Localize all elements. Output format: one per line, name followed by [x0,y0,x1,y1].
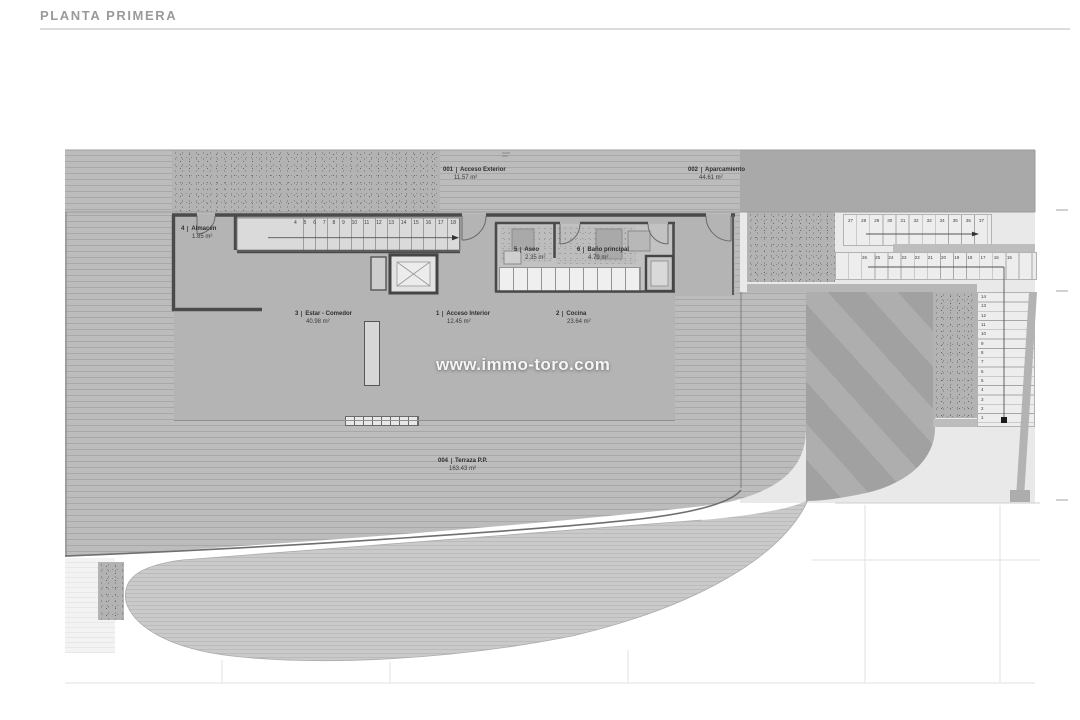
room-name: Aseo [524,247,539,253]
room-number: 2 [556,311,563,317]
watermark: www.immo-toro.com [436,355,610,375]
room-area: 44.61 m² [699,175,745,183]
room-number: 004 [438,458,452,464]
north-mark-icon [502,153,510,156]
room-number: 4 [181,226,188,232]
room-area: 23.64 m² [567,319,591,327]
room-name: Almacén [191,226,216,232]
room-name: Acceso Interior [446,311,490,317]
room-label-acceso-exterior: 001Acceso Exterior 11.57 m² [443,167,506,183]
room-area: 11.57 m² [454,175,506,183]
exterior-stair-arrow-icon [972,232,979,237]
room-label-aseo: 5Aseo 2.35 m² [514,247,545,263]
room-number: 002 [688,167,702,173]
boundary-wall [1016,292,1037,498]
room-area: 12.45 m² [447,319,490,327]
band-edges [65,150,1035,212]
room-name: Baño principal [587,247,629,253]
room-number: 6 [577,247,584,253]
stair-outline [237,218,460,251]
room-number: 5 [514,247,521,253]
room-label-aparcamiento: 002Aparcamiento 44.61 m² [688,167,745,183]
shaft-duct [371,257,386,290]
entrance-door-arc [462,216,486,240]
room-name: Estar - Comedor [305,311,352,317]
margin-ticks [1056,210,1068,500]
side-door-arc [706,216,731,241]
room-area: 163.43 m² [449,466,487,474]
room-label-bano-principal: 6Baño principal 4.79 m² [577,247,629,263]
room-name: Acceso Exterior [460,167,506,173]
exterior-stair-path-lower [868,267,1004,419]
floor-plan-sheet: PLANTA PRIMERA 456789101112131415161718 … [0,0,1080,720]
room-area: 1.85 m² [192,234,216,242]
stair-direction-arrow-icon [452,235,459,240]
garden-outline [125,500,808,661]
room-area: 40.98 m² [306,319,352,327]
room-label-estar-comedor: 3Estar - Comedor 40.98 m² [295,311,352,327]
room-label-acceso-interior: 1Acceso Interior 12.45 m² [436,311,490,327]
room-number: 3 [295,311,302,317]
room-number: 001 [443,167,457,173]
aseo-door-arc [560,224,580,244]
door-swings [197,216,731,244]
bath-door-arc [648,224,668,244]
room-area: 4.79 m² [588,255,629,263]
shower-tray [651,261,668,286]
room-label-cocina: 2Cocina 23.64 m² [556,311,591,327]
room-number: 1 [436,311,443,317]
room-label-almacen: 4Almacén 1.85 m² [181,226,216,242]
room-name: Aparcamiento [705,167,745,173]
room-label-terraza: 004Terraza P.P. 163.43 m² [438,458,487,474]
terrace-bottom-edge [65,490,741,556]
room-name: Cocina [566,311,586,317]
stair-start-marker [1001,417,1007,423]
room-name: Terraza P.P. [455,458,487,464]
room-area: 2.35 m² [525,255,545,263]
boundary-wall-foot [1010,490,1030,502]
